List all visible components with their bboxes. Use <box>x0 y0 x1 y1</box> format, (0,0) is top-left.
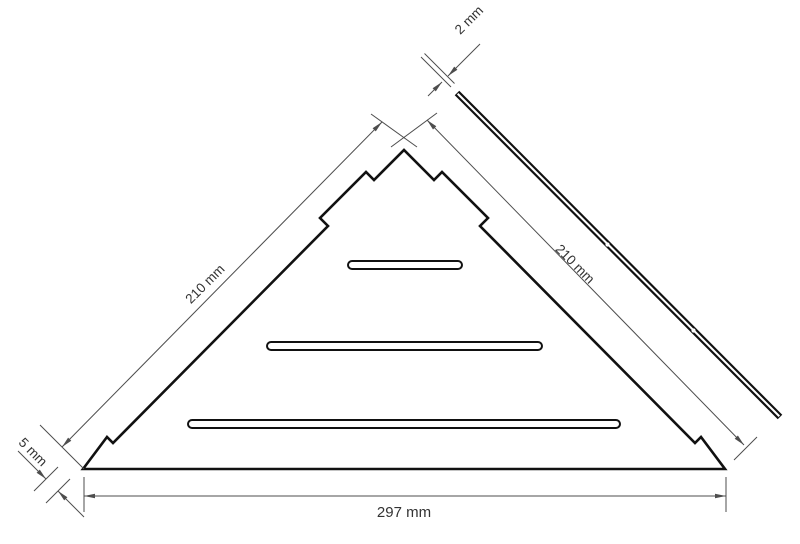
label-5mm: 5 mm <box>16 435 50 469</box>
drawing-canvas: 210 mm 210 mm 297 mm 5 mm 2 mm <box>0 0 800 544</box>
label-2mm: 2 mm <box>452 3 486 37</box>
extension-line-apex-right <box>391 113 437 147</box>
panel-joint-mark <box>605 242 609 246</box>
label-left-210: 210 mm <box>182 261 227 306</box>
extension-line-apex-left <box>371 114 417 147</box>
label-right-210: 210 mm <box>552 241 597 286</box>
shelf-slot-top <box>348 261 462 269</box>
shelf-slot-middle <box>267 342 542 350</box>
technical-drawing: 210 mm 210 mm 297 mm 5 mm 2 mm <box>0 0 800 544</box>
arrow-297-left <box>84 494 95 499</box>
extension-line-2mm-b <box>425 54 455 84</box>
panel-joint-mark <box>691 328 695 332</box>
label-297: 297 mm <box>377 504 431 521</box>
shelf-slot-bottom <box>188 420 620 428</box>
extension-line-2mm-a <box>421 57 451 87</box>
arrow-297-right <box>715 494 726 499</box>
